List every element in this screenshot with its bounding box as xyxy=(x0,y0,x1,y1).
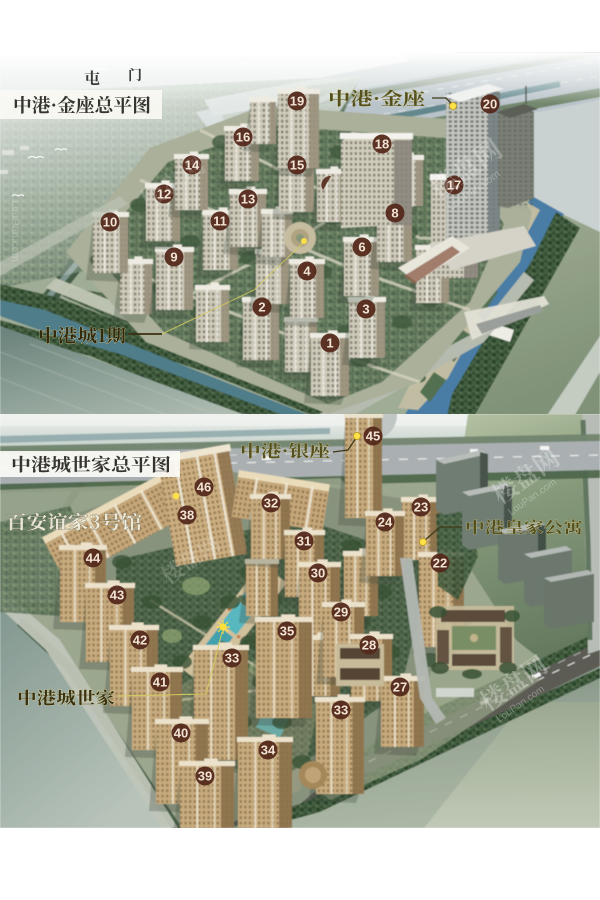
svg-text:32: 32 xyxy=(264,496,278,511)
svg-text:34: 34 xyxy=(261,743,276,758)
svg-text:16: 16 xyxy=(236,130,250,145)
svg-text:24: 24 xyxy=(378,515,393,530)
svg-text:29: 29 xyxy=(334,605,348,620)
svg-text:LouPan.com: LouPan.com xyxy=(9,200,21,262)
svg-text:15: 15 xyxy=(290,158,304,173)
svg-text:18: 18 xyxy=(375,137,389,152)
svg-text:35: 35 xyxy=(280,624,294,639)
svg-text:6: 6 xyxy=(358,240,365,255)
svg-text:13: 13 xyxy=(241,192,255,207)
svg-text:30: 30 xyxy=(311,566,325,581)
svg-text:39: 39 xyxy=(198,769,212,784)
svg-text:2: 2 xyxy=(258,300,265,315)
svg-text:4: 4 xyxy=(303,264,311,279)
svg-text:46: 46 xyxy=(197,480,211,495)
svg-text:44: 44 xyxy=(86,551,101,566)
svg-text:27: 27 xyxy=(393,680,407,695)
svg-text:10: 10 xyxy=(103,215,117,230)
svg-text:19: 19 xyxy=(290,94,304,109)
svg-text:33: 33 xyxy=(334,703,348,718)
svg-text:40: 40 xyxy=(174,726,188,741)
svg-text:41: 41 xyxy=(153,675,167,690)
svg-text:9: 9 xyxy=(170,250,177,265)
svg-text:43: 43 xyxy=(110,588,124,603)
svg-text:20: 20 xyxy=(483,97,497,112)
svg-text:3: 3 xyxy=(362,302,369,317)
svg-text:11: 11 xyxy=(213,214,227,229)
svg-text:1: 1 xyxy=(326,336,333,351)
svg-text:8: 8 xyxy=(391,206,398,221)
svg-text:33: 33 xyxy=(225,651,239,666)
svg-text:38: 38 xyxy=(180,508,194,523)
svg-text:45: 45 xyxy=(366,429,380,444)
svg-text:28: 28 xyxy=(362,638,376,653)
svg-text:23: 23 xyxy=(414,500,428,515)
svg-text:31: 31 xyxy=(297,534,311,549)
svg-text:22: 22 xyxy=(433,556,447,571)
svg-text:42: 42 xyxy=(133,633,147,648)
